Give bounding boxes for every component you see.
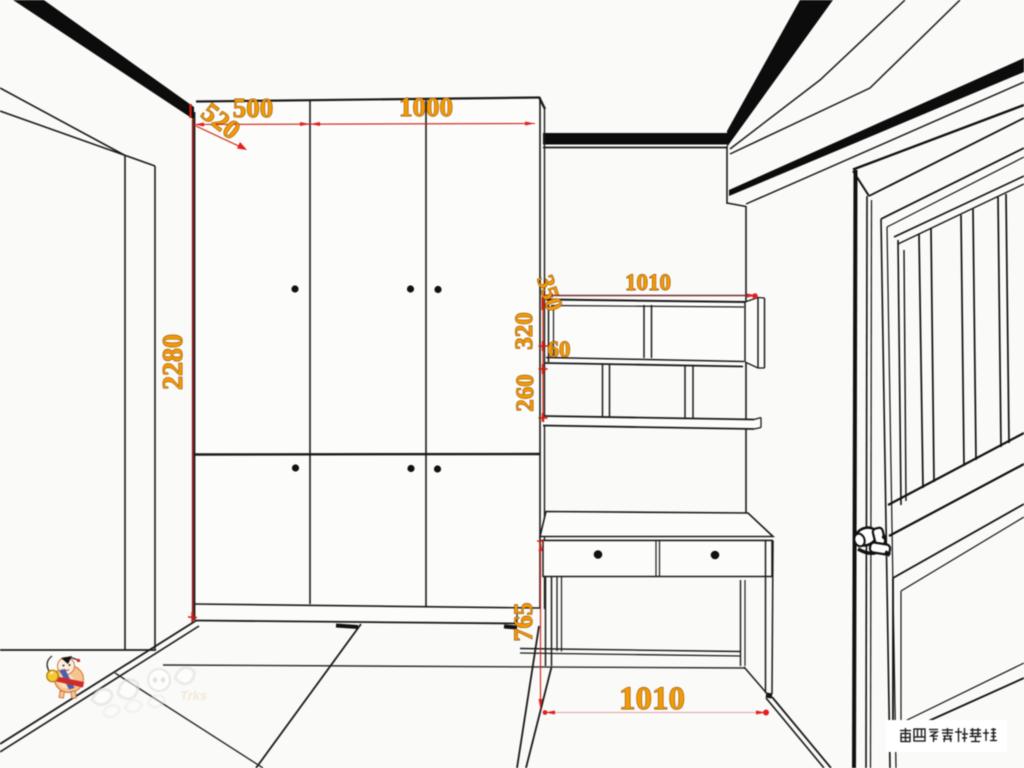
svg-text:1010: 1010 (619, 681, 685, 717)
svg-text:1000: 1000 (399, 92, 453, 122)
svg-text:Trks: Trks (180, 688, 207, 703)
svg-text:60: 60 (548, 337, 571, 362)
svg-text:260: 260 (512, 374, 539, 412)
svg-text:1010: 1010 (625, 270, 671, 295)
svg-text:2280: 2280 (158, 334, 189, 390)
svg-text:320: 320 (511, 312, 538, 350)
svg-text:765: 765 (509, 603, 538, 642)
